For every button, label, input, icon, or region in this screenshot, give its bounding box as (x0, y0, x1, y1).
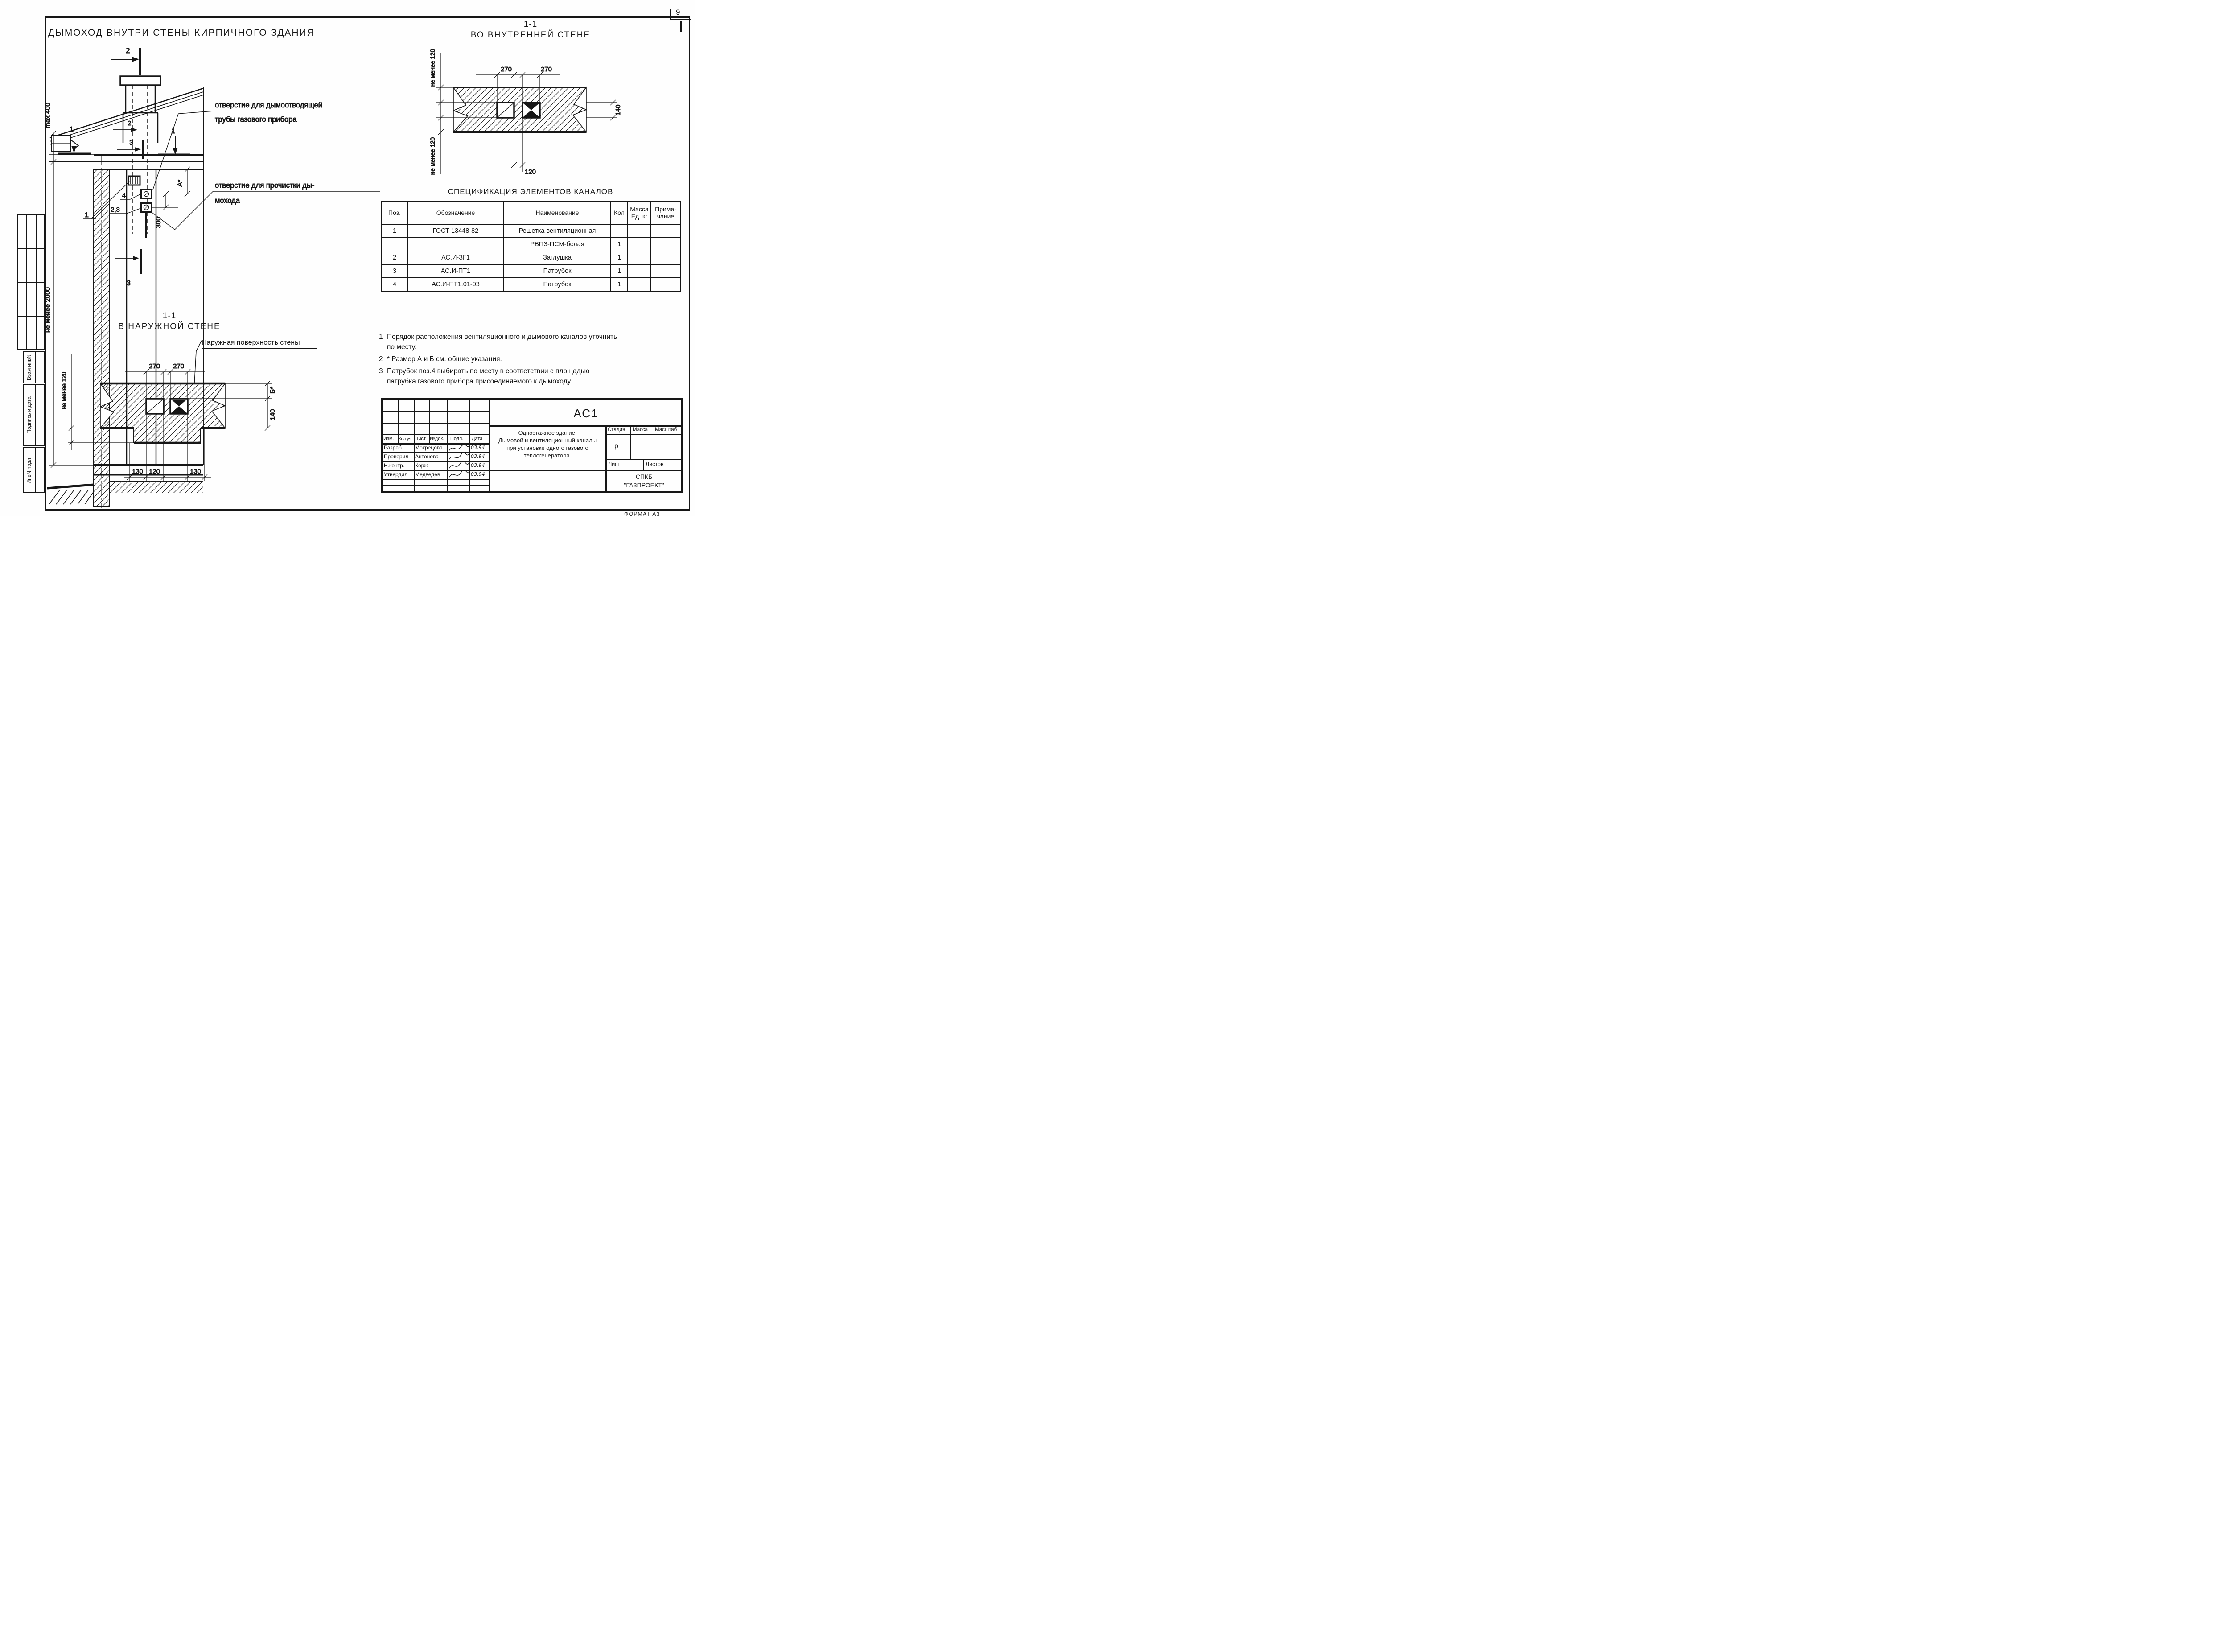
cell-qty: 1 (611, 238, 628, 251)
spec-row: 1 ГОСТ 13448-82 Решетка вентиляционная (382, 224, 680, 238)
cell-mass (628, 278, 651, 291)
sidebar-label-inv: ИнвN подл. (24, 448, 35, 492)
tb-header-mass: Масса (633, 427, 648, 433)
spec-row: 2 АС.И-ЗГ1 Заглушка 1 (382, 251, 680, 264)
sidebar-label-vzam: Взам инвN (24, 352, 35, 383)
tb-header-koluch: Кол.уч. (399, 437, 412, 441)
note-number: 2 (379, 354, 387, 364)
sidebar-box-vzam: Взам инвN (23, 351, 45, 383)
spec-header-mass-1: Масса (630, 206, 649, 213)
callout-flue-line1: отверстие для дымоотводящей (215, 101, 322, 109)
cell-qty: 1 (611, 264, 628, 278)
spec-row: 4 АС.И-ПТ1.01-03 Патрубок 1 (382, 278, 680, 291)
spec-title: СПЕЦИФИКАЦИЯ ЭЛЕМЕНТОВ КАНАЛОВ (381, 187, 680, 196)
surface-label-leader (194, 341, 202, 383)
dim-270l-text: 270 (501, 66, 512, 73)
dim-min120-bot-text: не менее 120 (429, 137, 436, 175)
cell-designation (407, 238, 504, 251)
tb-description: Одноэтажное здание. Дымовой и вентиляцио… (490, 429, 605, 459)
cell-pos: 4 (382, 278, 407, 291)
dim-A (152, 167, 193, 197)
cell-qty: 1 (611, 278, 628, 291)
section-mark-2-top-label: 2 (126, 46, 130, 55)
inner-view-title: ВО ВНУТРЕННЕЙ СТЕНЕ (464, 30, 597, 40)
tb-role-nkontr: Н.контр. (384, 462, 404, 469)
dim-120-bottom (505, 162, 532, 168)
cell-name: Патрубок (504, 264, 611, 278)
section-mark-3-low (115, 249, 141, 274)
section-mark-2-low-label: 2 (128, 119, 131, 127)
inner-wall-plan: 270 270 120 140 (426, 39, 640, 186)
drawing-sheet: 9 Взам инвN Подпись и дата ИнвN подл. ДЫ… (0, 0, 695, 516)
note-number: 3 (379, 366, 387, 387)
main-view-title: ДЫМОХОД ВНУТРИ СТЕНЫ КИРПИЧНОГО ЗДАНИЯ (48, 28, 315, 38)
cell-designation: АС.И-ПТ1 (407, 264, 504, 278)
tb-header-data: Дата (472, 436, 482, 441)
cell-mass (628, 224, 651, 238)
spec-row: РВПЗ-ПСМ-белая 1 (382, 238, 680, 251)
section-mark-1-right (158, 136, 190, 155)
cell-name: Заглушка (504, 251, 611, 264)
dim-A-text: А* (176, 180, 184, 187)
tb-name-razrab: Мокрецова (415, 445, 443, 451)
cell-designation: АС.И-ПТ1.01-03 (407, 278, 504, 291)
cell-note (651, 224, 680, 238)
tb-role-utverdil: Утвердил (384, 471, 407, 478)
dim-min2000-text: не менее 2000 (45, 287, 52, 333)
title-block: Изм. Кол.уч. Лист №док. Подп. Дата Разра… (381, 398, 683, 493)
callout-clean-line1: отверстие для прочистки ды- (215, 181, 314, 190)
tb-header-izm: Изм. (383, 436, 394, 441)
vent-channel (146, 399, 164, 414)
dim-130r-text: 130 (190, 468, 201, 475)
note-line: Порядок расположения вентиляционного и д… (387, 332, 617, 342)
spec-row: 3 АС.И-ПТ1 Патрубок 1 (382, 264, 680, 278)
tb-header-podp: Подп. (450, 436, 463, 441)
sidebar-grid (17, 214, 45, 350)
section-mark-2-top (111, 48, 140, 75)
tb-date-utverdil: 03.94 (471, 471, 485, 477)
cell-pos: 1 (382, 224, 407, 238)
cell-mass (628, 251, 651, 264)
cell-designation: ГОСТ 13448-82 (407, 224, 504, 238)
pos-23-text: 2,3 (111, 206, 120, 214)
tb-date-nkontr: 03.94 (471, 462, 485, 468)
dim-300-text: 300 (155, 217, 162, 228)
dim-270r-text: 270 (541, 66, 552, 73)
wall-protrusion (134, 428, 201, 443)
cell-qty (611, 224, 628, 238)
section-mark-3-low-label: 3 (127, 280, 131, 287)
dim-max400-text: max 400 (45, 103, 52, 128)
cell-name: РВПЗ-ПСМ-белая (504, 238, 611, 251)
tb-header-scale: Масштаб (655, 427, 677, 433)
tb-description-line: теплогенератора. (490, 452, 605, 459)
section-mark-1-left-label: 1 (70, 126, 74, 133)
sidebar-box-inv: ИнвN подл. (23, 447, 45, 493)
tb-name-proveril: Антонова (415, 453, 439, 460)
smoke-channel (523, 103, 540, 118)
signatures (448, 443, 470, 480)
tb-org-line1: СПКБ (605, 473, 683, 481)
dim-140-text: 140 (269, 409, 276, 420)
page-number-underline (670, 19, 691, 20)
cell-name: Решетка вентиляционная (504, 224, 611, 238)
note-2: 2 * Размер А и Б см. общие указания. (379, 354, 673, 364)
spec-header-note: Приме-чание (651, 201, 680, 224)
dim-min120-text: не менее 120 (61, 372, 67, 409)
dim-270r-text: 270 (173, 363, 184, 370)
tb-description-line: при установке одного газового (490, 444, 605, 452)
cell-note (651, 238, 680, 251)
tb-role-proveril: Проверил (384, 453, 408, 460)
tb-doc-code: АС1 (490, 407, 683, 420)
cell-pos: 3 (382, 264, 407, 278)
dim-270l-text: 270 (149, 363, 160, 370)
cell-note (651, 251, 680, 264)
spec-header-note-2: чание (653, 213, 679, 220)
cell-name: Патрубок (504, 278, 611, 291)
callout-flue-line2: трубы газового прибора (215, 115, 297, 124)
cell-pos: 2 (382, 251, 407, 264)
spec-header-name: Наименование (504, 201, 611, 224)
attic-slab (49, 155, 203, 169)
cell-mass (628, 238, 651, 251)
tb-name-utverdil: Медведев (415, 471, 440, 478)
tb-organization: СПКБ "ГАЗПРОЕКТ" (605, 473, 683, 490)
note-line: * Размер А и Б см. общие указания. (387, 354, 502, 364)
spec-table: Поз. Обозначение Наименование Кол МассаЕ… (381, 201, 681, 292)
callout-clean-leader (150, 191, 380, 230)
dim-B-text: Б* (269, 387, 276, 394)
tb-date-razrab: 03.94 (471, 445, 485, 450)
roof-slope (50, 88, 203, 144)
note-text: Порядок расположения вентиляционного и д… (387, 332, 617, 352)
tb-date-proveril: 03.94 (471, 453, 485, 459)
tb-header-sheets: Листов (646, 461, 664, 467)
callout-clean-line2: мохода (215, 197, 240, 205)
section-mark-2-low (113, 128, 137, 132)
outer-wall-plan: 270 270 130 120 130 (58, 334, 317, 494)
spec-header-designation: Обозначение (407, 201, 504, 224)
note-line: Патрубок поз.4 выбирать по месту в соотв… (387, 366, 589, 376)
spec-header-mass-2: Ед, кг (630, 213, 649, 220)
page-number-tick (680, 21, 682, 32)
dim-130l-text: 130 (132, 468, 143, 475)
dim-140-text: 140 (614, 104, 622, 115)
tb-description-line: Дымовой и вентиляционный каналы (490, 437, 605, 444)
note-text: Патрубок поз.4 выбирать по месту в соотв… (387, 366, 589, 387)
cell-note (651, 278, 680, 291)
dim-120-text: 120 (149, 468, 160, 475)
pos-4-text: 4 (122, 192, 126, 199)
smoke-channel (170, 399, 188, 414)
dim-120-text: 120 (525, 168, 536, 176)
spec-header-mass: МассаЕд, кг (628, 201, 651, 224)
sidebar-box-podpis: Подпись и дата (23, 384, 45, 446)
tb-stage-value: р (614, 442, 618, 450)
flue-opening-lower (141, 203, 152, 238)
spec-header-pos: Поз. (382, 201, 407, 224)
tb-name-nkontr: Корж (415, 462, 428, 469)
flue-opening-upper (141, 190, 152, 198)
cell-designation: АС.И-ЗГ1 (407, 251, 504, 264)
cell-mass (628, 264, 651, 278)
sidebar-label-podpis: Подпись и дата (24, 385, 35, 445)
note-line: патрубка газового прибора присоединяемог… (387, 376, 589, 387)
note-number: 1 (379, 332, 387, 352)
tb-header-sheet: Лист (608, 461, 620, 467)
section-mark-3-top-label: 3 (129, 139, 133, 147)
tb-header-list: Лист (415, 436, 426, 441)
page-number-corner-line (670, 9, 671, 20)
inner-view-title-number: 1-1 (464, 20, 597, 29)
tb-role-razrab: Разраб. (384, 445, 403, 451)
note-3: 3 Патрубок поз.4 выбирать по месту в соо… (379, 366, 673, 387)
spec-header-note-1: Приме- (653, 206, 679, 213)
wall-band (453, 87, 586, 132)
tb-header-stage: Стадия (608, 427, 625, 433)
page-number: 9 (676, 8, 680, 17)
spec-header-qty: Кол (611, 201, 628, 224)
chimney-stack (120, 76, 160, 143)
tb-description-line: Одноэтажное здание. (490, 429, 605, 437)
cell-note (651, 264, 680, 278)
note-1: 1 Порядок расположения вентиляционного и… (379, 332, 673, 352)
cell-qty: 1 (611, 251, 628, 264)
dim-min120-top-text: не менее 120 (429, 49, 436, 87)
tb-header-ndok: №док. (430, 436, 444, 441)
cell-pos (382, 238, 407, 251)
notes-block: 1 Порядок расположения вентиляционного и… (379, 332, 673, 387)
tb-org-line2: "ГАЗПРОЕКТ" (605, 481, 683, 490)
pos-1-text: 1 (85, 211, 89, 219)
vent-grille-symbol (128, 176, 140, 185)
note-line: по месту. (387, 342, 617, 352)
vent-channel (497, 103, 514, 118)
